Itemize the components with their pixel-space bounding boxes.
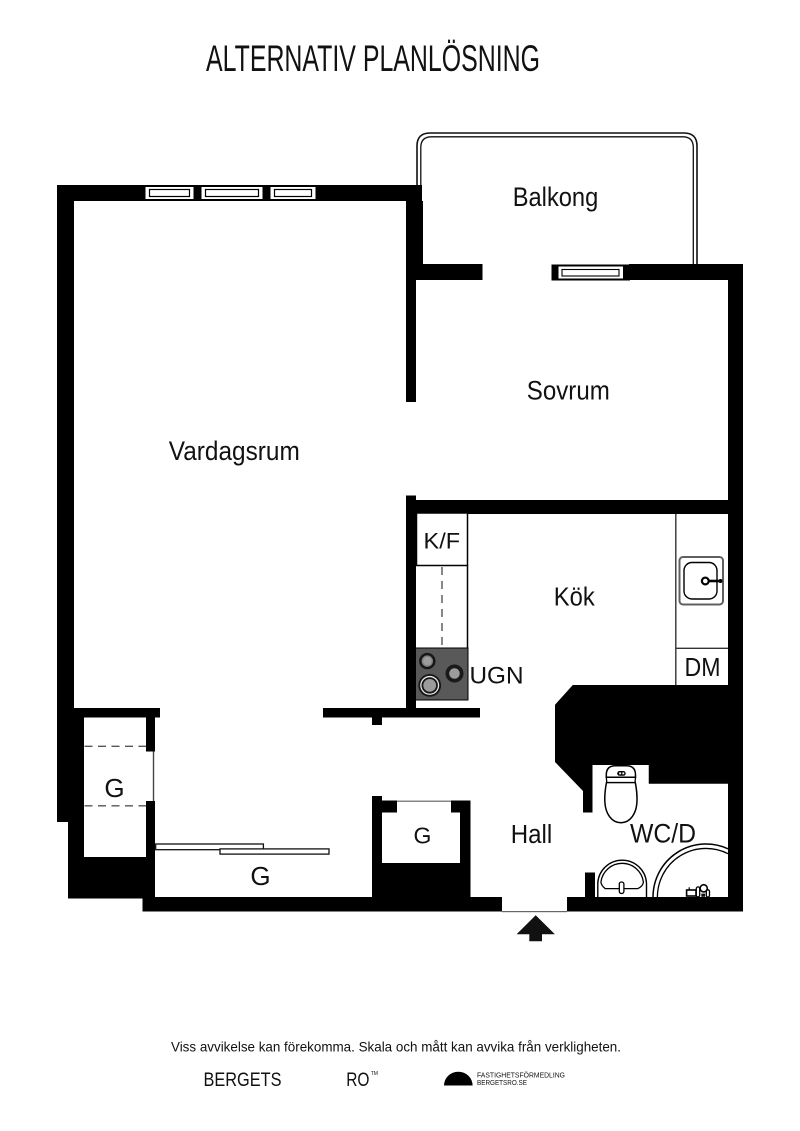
svg-text:DM: DM — [685, 652, 721, 682]
svg-text:Vardagsrum: Vardagsrum — [169, 436, 300, 466]
svg-text:BERGETS: BERGETS — [204, 1070, 282, 1091]
svg-text:G: G — [104, 773, 124, 803]
svg-text:UGN: UGN — [470, 663, 524, 690]
svg-text:WC/D: WC/D — [630, 819, 696, 849]
svg-text:K/F: K/F — [424, 529, 461, 554]
svg-text:RO: RO — [346, 1070, 369, 1091]
svg-text:Viss avvikelse kan förekomma.: Viss avvikelse kan förekomma. Skala och … — [171, 1039, 621, 1054]
svg-text:Balkong: Balkong — [513, 182, 599, 212]
svg-text:Sovrum: Sovrum — [527, 376, 610, 406]
svg-text:G: G — [414, 822, 432, 848]
svg-text:Kök: Kök — [554, 583, 595, 611]
svg-text:Hall: Hall — [511, 821, 553, 849]
svg-text:ALTERNATIV PLANLÖSNING: ALTERNATIV PLANLÖSNING — [206, 38, 540, 79]
svg-text:BERGETSRO.SE: BERGETSRO.SE — [477, 1078, 527, 1087]
svg-text:TM: TM — [371, 1071, 378, 1077]
svg-text:G: G — [250, 861, 270, 891]
